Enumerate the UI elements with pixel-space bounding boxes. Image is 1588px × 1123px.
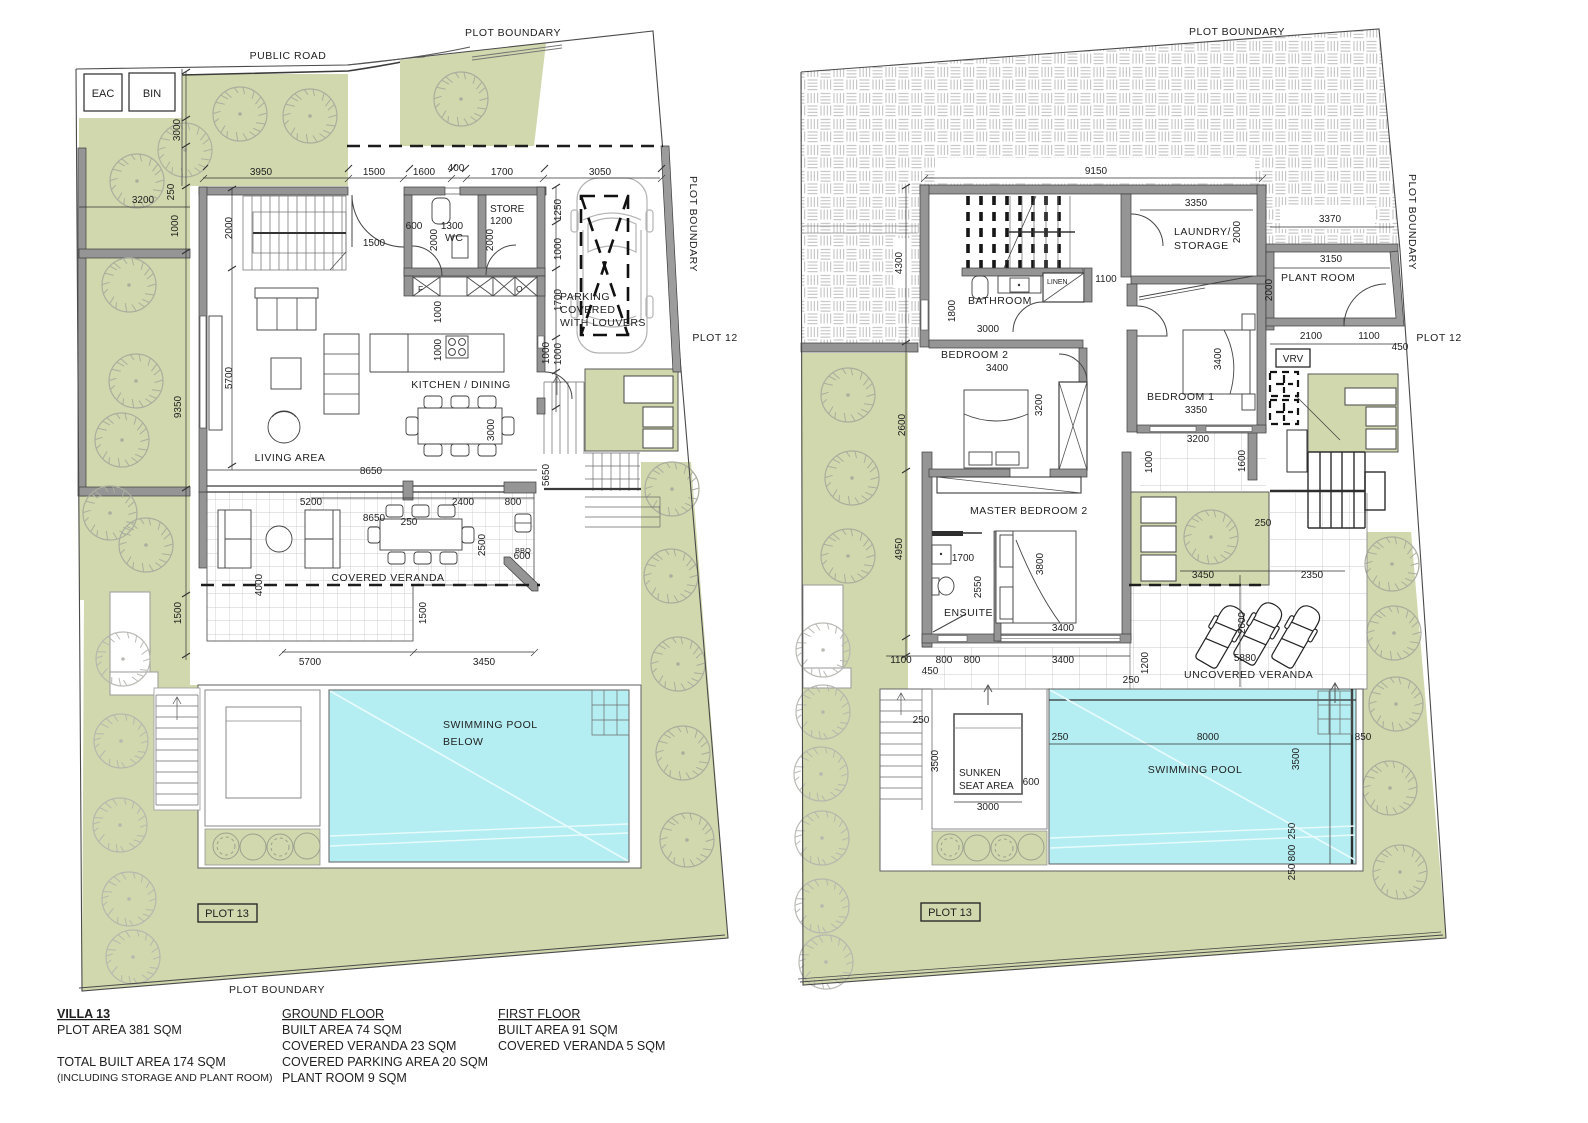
svg-text:1600: 1600 xyxy=(1237,449,1248,472)
svg-text:MASTER BEDROOM 2: MASTER BEDROOM 2 xyxy=(970,505,1088,517)
svg-text:1200: 1200 xyxy=(1140,651,1151,674)
svg-text:8650: 8650 xyxy=(363,513,386,524)
svg-text:4000: 4000 xyxy=(254,573,265,596)
svg-text:2600: 2600 xyxy=(1237,611,1248,634)
svg-text:PLOT BOUNDARY: PLOT BOUNDARY xyxy=(465,27,561,39)
svg-text:PLOT BOUNDARY: PLOT BOUNDARY xyxy=(229,984,325,996)
svg-text:1500: 1500 xyxy=(363,167,386,178)
svg-text:3950: 3950 xyxy=(250,167,273,178)
svg-text:800: 800 xyxy=(936,655,953,666)
svg-text:1200: 1200 xyxy=(490,216,513,227)
svg-text:BATHROOM: BATHROOM xyxy=(968,295,1032,307)
svg-text:COVERED: COVERED xyxy=(560,304,615,316)
svg-text:PLOT 13: PLOT 13 xyxy=(928,907,972,919)
svg-text:3350: 3350 xyxy=(1185,405,1208,416)
svg-text:3450: 3450 xyxy=(473,657,496,668)
svg-text:250: 250 xyxy=(913,715,930,726)
svg-text:PUBLIC ROAD: PUBLIC ROAD xyxy=(250,50,327,62)
svg-text:1700: 1700 xyxy=(553,288,564,311)
svg-text:VRV: VRV xyxy=(1283,354,1304,365)
svg-text:ENSUITE: ENSUITE xyxy=(944,607,993,619)
svg-text:3200: 3200 xyxy=(1187,434,1210,445)
svg-text:SWIMMING POOL: SWIMMING POOL xyxy=(443,719,538,731)
svg-text:UNCOVERED VERANDA: UNCOVERED VERANDA xyxy=(1184,669,1313,681)
svg-text:5880: 5880 xyxy=(1234,653,1257,664)
svg-text:1500: 1500 xyxy=(418,601,429,624)
svg-text:PLOT AREA 381 SQM: PLOT AREA 381 SQM xyxy=(57,1023,182,1037)
svg-text:3200: 3200 xyxy=(132,195,155,206)
svg-text:1250: 1250 xyxy=(553,198,564,221)
svg-text:BEDROOM 2: BEDROOM 2 xyxy=(941,349,1009,361)
svg-text:TOTAL BUILT AREA 174 SQM: TOTAL BUILT AREA 174 SQM xyxy=(57,1055,226,1069)
svg-text:400: 400 xyxy=(448,163,465,174)
svg-text:3150: 3150 xyxy=(1320,254,1343,265)
svg-text:850: 850 xyxy=(1355,732,1372,743)
svg-text:KITCHEN / DINING: KITCHEN / DINING xyxy=(411,379,511,391)
svg-text:1000: 1000 xyxy=(170,214,181,237)
svg-text:800: 800 xyxy=(964,655,981,666)
svg-text:1700: 1700 xyxy=(952,553,975,564)
svg-text:2350: 2350 xyxy=(1301,570,1324,581)
svg-text:9350: 9350 xyxy=(173,395,184,418)
svg-text:3370: 3370 xyxy=(1319,214,1342,225)
svg-text:COVERED PARKING AREA 20 SQM: COVERED PARKING AREA 20 SQM xyxy=(282,1055,488,1069)
svg-text:250: 250 xyxy=(166,183,177,200)
svg-text:GROUND FLOOR: GROUND FLOOR xyxy=(282,1007,384,1021)
svg-text:BEDROOM 1: BEDROOM 1 xyxy=(1147,391,1215,403)
svg-text:3000: 3000 xyxy=(486,418,497,441)
svg-text:4300: 4300 xyxy=(894,251,905,274)
svg-text:800: 800 xyxy=(505,497,522,508)
svg-text:VILLA 13: VILLA 13 xyxy=(57,1007,110,1021)
svg-text:250: 250 xyxy=(1287,863,1298,880)
svg-text:4950: 4950 xyxy=(894,537,905,560)
svg-text:WC: WC xyxy=(445,232,464,244)
svg-text:9150: 9150 xyxy=(1085,166,1108,177)
svg-text:EAC: EAC xyxy=(92,88,115,100)
svg-text:3450: 3450 xyxy=(1192,570,1215,581)
svg-text:PLOT 13: PLOT 13 xyxy=(205,908,249,920)
svg-text:8000: 8000 xyxy=(1197,732,1220,743)
svg-text:SWIMMING POOL: SWIMMING POOL xyxy=(1148,764,1243,776)
svg-text:5700: 5700 xyxy=(224,366,235,389)
svg-text:STORE: STORE xyxy=(490,204,525,215)
svg-text:1500: 1500 xyxy=(173,601,184,624)
svg-text:2550: 2550 xyxy=(973,575,984,598)
svg-text:1000: 1000 xyxy=(553,237,564,260)
svg-text:PARKING: PARKING xyxy=(560,291,610,303)
svg-text:1500: 1500 xyxy=(363,238,386,249)
svg-text:1700: 1700 xyxy=(491,167,514,178)
svg-text:1000: 1000 xyxy=(433,338,444,361)
svg-text:1000: 1000 xyxy=(541,341,552,364)
svg-text:PLOT BOUNDARY: PLOT BOUNDARY xyxy=(687,176,699,272)
svg-text:3400: 3400 xyxy=(1052,655,1075,666)
svg-text:PLANT ROOM 9 SQM: PLANT ROOM 9 SQM xyxy=(282,1071,407,1085)
svg-text:600: 600 xyxy=(406,221,423,232)
svg-text:5650: 5650 xyxy=(541,463,552,486)
svg-text:1300: 1300 xyxy=(441,221,464,232)
svg-text:3050: 3050 xyxy=(589,167,612,178)
svg-text:3800: 3800 xyxy=(1035,552,1046,575)
svg-text:(INCLUDING STORAGE AND PLANT R: (INCLUDING STORAGE AND PLANT ROOM) xyxy=(57,1072,272,1084)
svg-text:1000: 1000 xyxy=(1144,450,1155,473)
svg-text:3400: 3400 xyxy=(1213,347,1224,370)
svg-text:3200: 3200 xyxy=(1034,393,1045,416)
svg-text:PLOT BOUNDARY: PLOT BOUNDARY xyxy=(1406,174,1418,270)
svg-text:3500: 3500 xyxy=(930,749,941,772)
svg-text:SUNKEN: SUNKEN xyxy=(959,768,1001,779)
svg-text:8650: 8650 xyxy=(360,466,383,477)
svg-text:1100: 1100 xyxy=(1358,331,1380,342)
svg-text:COVERED VERANDA: COVERED VERANDA xyxy=(331,572,444,584)
svg-text:PLOT 12: PLOT 12 xyxy=(692,332,737,344)
svg-text:2100: 2100 xyxy=(1300,331,1323,342)
svg-text:250: 250 xyxy=(1287,822,1298,839)
svg-text:800: 800 xyxy=(1287,844,1298,861)
svg-text:LINEN: LINEN xyxy=(1047,279,1068,286)
svg-text:1800: 1800 xyxy=(947,299,958,322)
svg-text:COVERED VERANDA 23 SQM: COVERED VERANDA 23 SQM xyxy=(282,1039,456,1053)
svg-text:2000: 2000 xyxy=(1264,278,1275,301)
svg-text:PLOT 12: PLOT 12 xyxy=(1416,332,1461,344)
svg-text:250: 250 xyxy=(1052,732,1069,743)
svg-text:FIRST FLOOR: FIRST FLOOR xyxy=(498,1007,580,1021)
svg-text:250: 250 xyxy=(1255,518,1272,529)
svg-text:3350: 3350 xyxy=(1185,198,1208,209)
svg-text:PLANT ROOM: PLANT ROOM xyxy=(1281,272,1355,284)
svg-text:BUILT AREA 91 SQM: BUILT AREA 91 SQM xyxy=(498,1023,618,1037)
svg-text:2000: 2000 xyxy=(224,216,235,239)
svg-text:600: 600 xyxy=(1023,777,1040,788)
svg-text:5200: 5200 xyxy=(300,497,323,508)
svg-text:LIVING AREA: LIVING AREA xyxy=(255,452,326,464)
svg-text:COVERED VERANDA 5 SQM: COVERED VERANDA 5 SQM xyxy=(498,1039,665,1053)
svg-text:F: F xyxy=(418,284,423,294)
svg-text:1600: 1600 xyxy=(413,167,436,178)
svg-text:2000: 2000 xyxy=(429,228,440,251)
svg-text:BUILT AREA 74 SQM: BUILT AREA 74 SQM xyxy=(282,1023,402,1037)
svg-text:3400: 3400 xyxy=(986,363,1009,374)
svg-text:WITH LOUVERS: WITH LOUVERS xyxy=(560,317,646,329)
svg-text:2000: 2000 xyxy=(1232,220,1243,243)
svg-text:600: 600 xyxy=(514,551,531,562)
svg-text:STORAGE: STORAGE xyxy=(1174,240,1229,252)
svg-text:2000: 2000 xyxy=(485,228,496,251)
svg-text:3000: 3000 xyxy=(977,324,1000,335)
svg-text:BIN: BIN xyxy=(143,88,161,100)
svg-text:3500: 3500 xyxy=(1291,747,1302,770)
svg-text:1000: 1000 xyxy=(553,342,564,365)
svg-text:450: 450 xyxy=(922,666,939,677)
svg-text:O: O xyxy=(516,284,523,294)
svg-text:PLOT BOUNDARY: PLOT BOUNDARY xyxy=(1189,26,1285,38)
svg-text:250: 250 xyxy=(401,517,418,528)
svg-text:SEAT AREA: SEAT AREA xyxy=(959,781,1014,792)
svg-text:3000: 3000 xyxy=(172,118,183,141)
svg-text:250: 250 xyxy=(1123,675,1140,686)
svg-text:3400: 3400 xyxy=(1052,623,1075,634)
svg-text:2500: 2500 xyxy=(477,533,488,556)
svg-text:1100: 1100 xyxy=(1095,274,1117,285)
svg-text:BELOW: BELOW xyxy=(443,736,483,748)
svg-text:3000: 3000 xyxy=(977,802,1000,813)
svg-text:LAUNDRY/: LAUNDRY/ xyxy=(1174,226,1231,238)
svg-text:1000: 1000 xyxy=(433,300,444,323)
svg-text:5700: 5700 xyxy=(299,657,322,668)
svg-text:1100: 1100 xyxy=(890,655,912,666)
svg-text:2400: 2400 xyxy=(452,497,475,508)
